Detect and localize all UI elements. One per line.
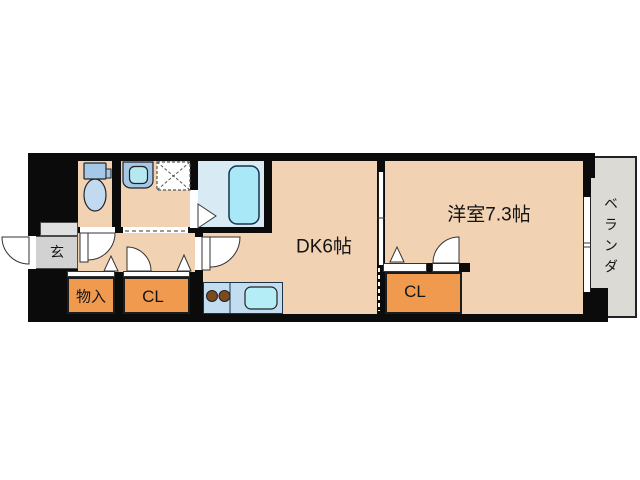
toilet-doorway [80,227,115,233]
veranda-label: ベランダ [601,196,621,280]
washroom-sliding-doorway [123,227,188,233]
hallway-floor [78,233,195,272]
sliding-partition [378,172,384,265]
veranda-window [583,197,591,292]
entrance-step [40,222,78,236]
dining-kitchen-label: DK6帖 [296,232,352,259]
washroom-floor [121,161,190,227]
wall-bath-dk [264,153,272,227]
bedroom-closet-track-end [459,263,470,272]
bath-doorway [190,190,198,228]
bedroom-closet-track-stub [427,263,432,272]
bedroom-label: 洋室7.3帖 [447,200,530,227]
dk-doorway [195,237,203,270]
wall-block-veranda-bottom [583,288,608,322]
toilet-room-floor [78,161,112,227]
floorplan: 玄 物入 CL DK6帖 洋室7.3帖 CL ベランダ [0,0,640,480]
bedroom-closet-label: CL [404,282,426,302]
bedroom-closet-door-track-right [432,263,460,272]
bedroom-closet-door-track-left [383,263,427,272]
bathroom-floor [198,161,264,227]
hall-closet-label: CL [142,287,164,307]
storage-label: 物入 [76,286,106,307]
kitchen-counter [203,282,283,314]
entrance-doorway [28,236,36,269]
entrance-swing-door-icon [2,237,29,264]
dining-kitchen-floor-upper [272,161,377,233]
entrance-label: 玄 [50,242,64,262]
wall-block-veranda-top [583,153,595,178]
wall-toilet-washroom [112,153,121,227]
